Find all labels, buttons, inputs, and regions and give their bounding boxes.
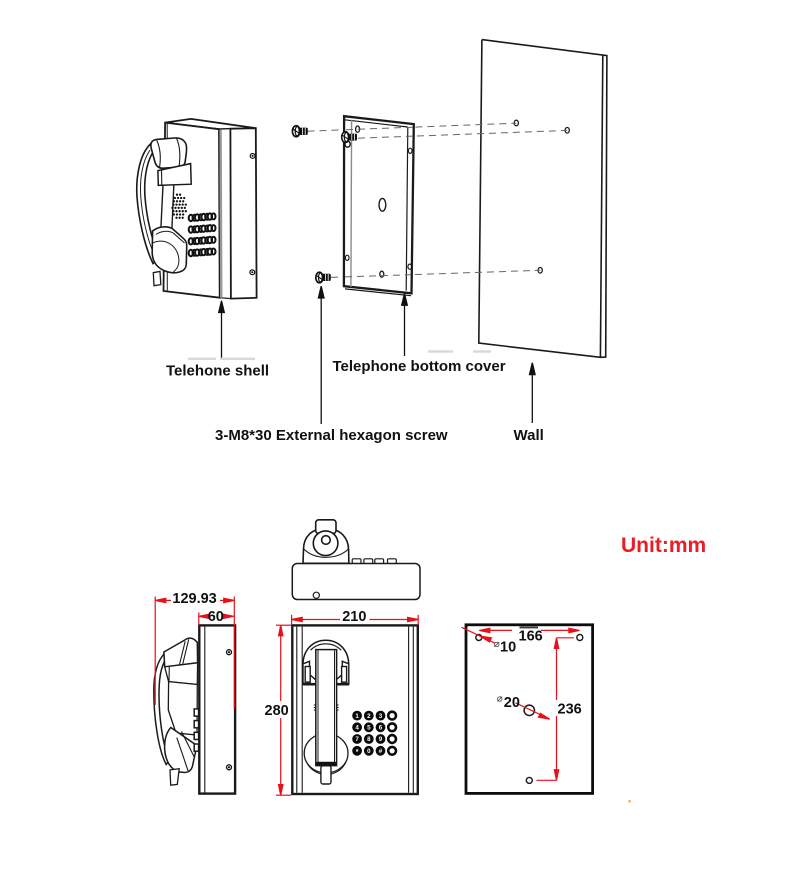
- svg-text:0: 0: [367, 748, 371, 755]
- svg-text:4: 4: [355, 725, 359, 732]
- svg-text:⌀: ⌀: [494, 639, 500, 650]
- svg-text:129.93: 129.93: [172, 591, 216, 607]
- svg-text:6: 6: [379, 725, 383, 732]
- svg-text:2: 2: [367, 713, 371, 720]
- svg-text:3: 3: [379, 713, 383, 720]
- svg-text:10: 10: [500, 639, 516, 655]
- svg-text:Telephone bottom cover: Telephone bottom cover: [333, 358, 506, 375]
- svg-text:280: 280: [265, 703, 289, 719]
- svg-text:#: #: [379, 748, 383, 755]
- svg-text:20: 20: [504, 695, 520, 711]
- svg-text:Wall: Wall: [514, 427, 544, 444]
- svg-text:5: 5: [367, 725, 371, 732]
- svg-text:166: 166: [519, 629, 543, 645]
- svg-text:⌀: ⌀: [497, 694, 503, 705]
- svg-text:3-M8*30 External hexagon screw: 3-M8*30 External hexagon screw: [215, 427, 448, 444]
- svg-text:Telehone shell: Telehone shell: [166, 363, 269, 380]
- svg-text:9: 9: [379, 736, 383, 743]
- svg-text:60: 60: [208, 609, 224, 625]
- svg-text:8: 8: [367, 736, 371, 743]
- svg-text:1: 1: [355, 713, 359, 720]
- svg-text:7: 7: [355, 736, 359, 743]
- svg-text:210: 210: [342, 609, 366, 625]
- svg-text:*: *: [356, 749, 359, 756]
- svg-text:236: 236: [558, 702, 582, 718]
- svg-text:Unit:mm: Unit:mm: [621, 534, 706, 557]
